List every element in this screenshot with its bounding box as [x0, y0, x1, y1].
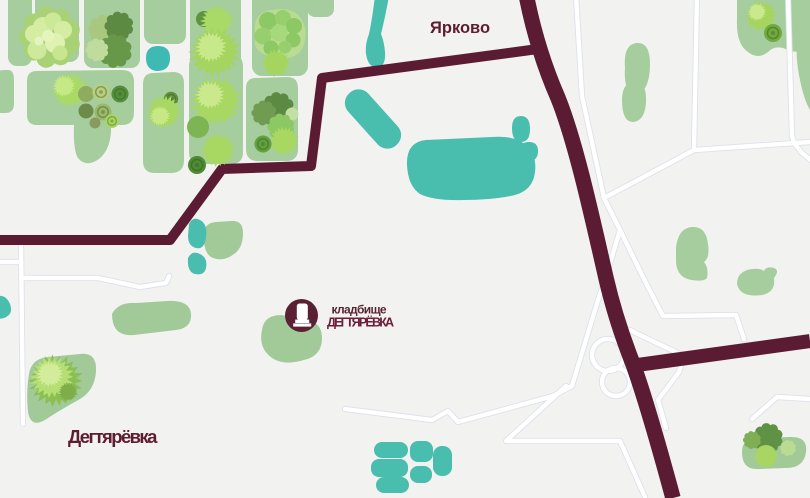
- svg-text:кладбище: кладбище: [332, 303, 387, 317]
- svg-text:ДЕГТЯРЁВКА: ДЕГТЯРЁВКА: [327, 315, 394, 330]
- svg-text:Дегтярёвка: Дегтярёвка: [68, 426, 158, 447]
- svg-text:Ярково: Ярково: [430, 19, 490, 37]
